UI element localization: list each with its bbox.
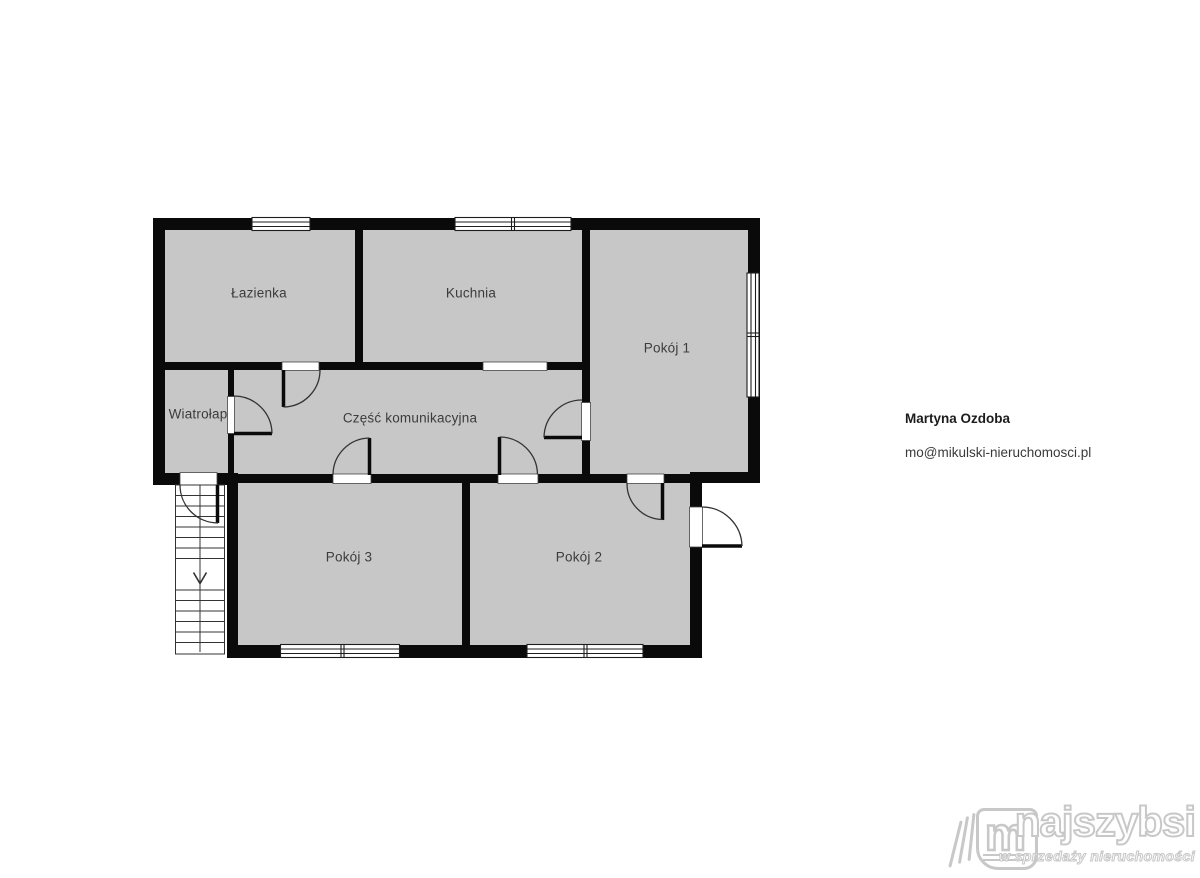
opening-pokoj2-door <box>498 474 538 484</box>
door-arc-wiatrolap <box>234 396 272 434</box>
agent-name: Martyna Ozdoba <box>905 411 1010 426</box>
opening-entry-door <box>180 473 217 486</box>
brand-logo: m najszybsi w sprzedaży nieruchomości <box>952 804 1197 874</box>
opening-lazienka-door <box>282 362 319 371</box>
room-label-wiatrolap: Wiatrołap <box>169 407 228 422</box>
window-pokoj1 <box>747 273 759 397</box>
plan-linework <box>0 0 1200 878</box>
room-label-pokoj2: Pokój 2 <box>556 550 602 565</box>
window-kuchnia <box>455 218 571 231</box>
logo-brand-text: najszybsi <box>1015 798 1195 846</box>
window-lazienka <box>252 218 310 231</box>
floorplan: Łazienka Kuchnia Pokój 1 Wiatrołap Część… <box>0 0 1200 878</box>
opening-pokoj3-door <box>333 474 371 484</box>
room-label-lazienka: Łazienka <box>231 286 287 301</box>
door-arc-pokoj1-pokoj2 <box>627 483 663 520</box>
agent-email: mo@mikulski-nieruchomosci.pl <box>905 445 1091 460</box>
door-arc-pokoj3 <box>333 438 370 475</box>
room-label-pokoj1: Pokój 1 <box>644 341 690 356</box>
room-label-pokoj3: Pokój 3 <box>326 550 372 565</box>
opening-pokoj2-exterior-door <box>690 507 703 547</box>
logo-tagline-text: w sprzedaży nieruchomości <box>999 848 1195 864</box>
door-arc-pokoj2-exterior <box>702 507 742 546</box>
opening-pokoj1-pokoj2-door <box>627 474 664 484</box>
window-pokoj3 <box>281 645 400 658</box>
door-arc-lazienka <box>284 370 321 407</box>
room-label-czesc-komunikacyjna: Część komunikacyjna <box>343 411 477 426</box>
door-arc-pokoj1 <box>544 400 582 438</box>
opening-pokoj1-door <box>582 403 591 441</box>
opening-kitchen-pass <box>483 362 547 371</box>
room-label-kuchnia: Kuchnia <box>446 286 496 301</box>
window-pokoj2 <box>527 645 643 658</box>
door-arc-pokoj2 <box>500 437 538 475</box>
opening-wiatrolap-door <box>228 397 235 434</box>
